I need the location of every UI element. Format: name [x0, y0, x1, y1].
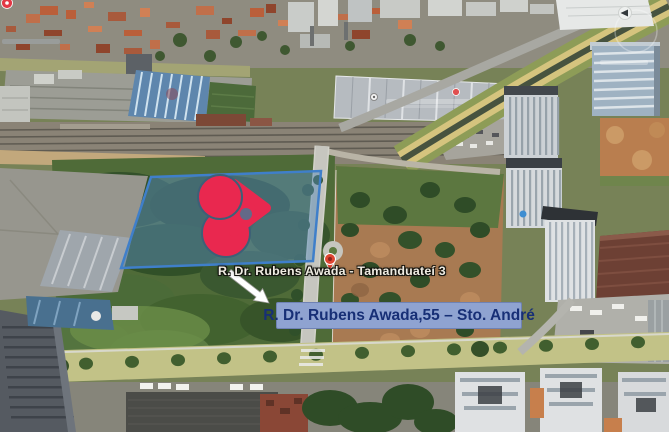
corner-pin-icon[interactable] [2, 0, 13, 9]
compass-icon[interactable] [615, 7, 657, 53]
road-pin-icon[interactable] [325, 254, 336, 272]
annotation-arrow-icon [227, 270, 269, 304]
address-banner: R. Dr. Rubens Awada,55 – Sto. André [276, 302, 522, 329]
aerial-map-view[interactable]: R. Dr. Rubens Awada - Tamanduateí 3 R. D… [0, 0, 669, 432]
annotation-overlay [0, 0, 669, 432]
